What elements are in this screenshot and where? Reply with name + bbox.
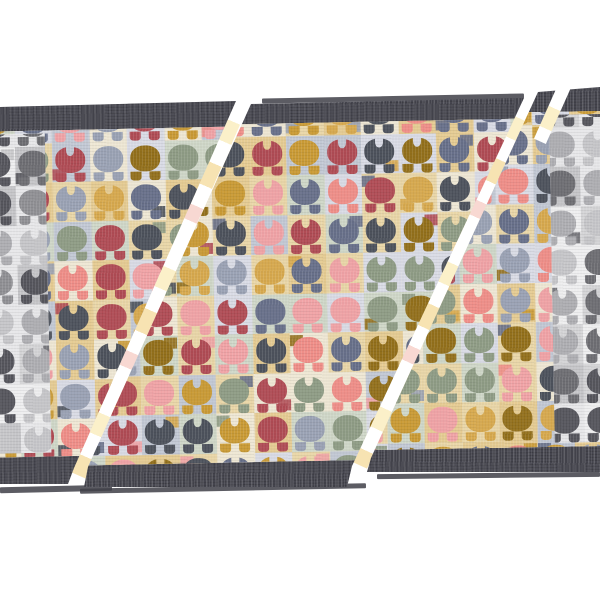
- pattern-cell: [582, 324, 600, 364]
- pattern-blob: [549, 210, 576, 237]
- pattern-foot: [387, 361, 398, 370]
- pattern-blob: [215, 180, 246, 207]
- pattern-cell: [0, 423, 21, 454]
- pattern-cell: [19, 343, 52, 383]
- pattern-blob: [0, 348, 15, 375]
- pattern-foot: [401, 124, 412, 133]
- mat-border-bottom: [358, 446, 600, 486]
- pattern-cell: [579, 126, 600, 166]
- pattern-foot: [112, 171, 123, 180]
- pattern-foot: [150, 210, 161, 219]
- pattern-foot: [74, 172, 85, 181]
- pattern-blob: [549, 289, 577, 316]
- pattern-foot: [314, 442, 325, 451]
- gray-colorway-strip: [549, 114, 600, 443]
- pattern-foot: [567, 354, 578, 363]
- pattern-cell: [461, 362, 499, 402]
- pattern-cell: [177, 295, 215, 335]
- pattern-blob: [403, 216, 434, 243]
- pattern-foot: [540, 431, 551, 440]
- pattern-notch: [376, 214, 384, 226]
- pattern-cell: [90, 181, 128, 221]
- pattern-cell: [288, 254, 326, 294]
- pattern-blob: [332, 415, 363, 442]
- pattern-cell: [424, 402, 462, 442]
- pattern-foot: [308, 165, 319, 174]
- pattern-foot: [238, 404, 249, 413]
- pattern-foot: [164, 445, 175, 454]
- pattern-blob: [22, 387, 51, 414]
- pattern-notch: [263, 177, 271, 189]
- pattern-notch: [414, 213, 422, 225]
- pattern-notch: [179, 181, 187, 193]
- pattern-blob: [502, 405, 532, 432]
- pattern-foot: [97, 369, 108, 378]
- pattern-blob: [402, 176, 433, 203]
- pattern-blob: [254, 258, 285, 285]
- pattern-blob: [255, 337, 286, 364]
- pattern-cell: [212, 216, 250, 256]
- pattern-foot: [565, 196, 576, 205]
- pattern-notch: [30, 226, 38, 238]
- pattern-blob: [253, 219, 284, 246]
- pattern-foot: [402, 163, 413, 172]
- pattern-foot: [499, 195, 510, 204]
- pattern-cell: [127, 141, 165, 181]
- pattern-blob: [56, 186, 87, 213]
- pattern-notch: [31, 266, 39, 278]
- pattern-cell: [252, 333, 290, 373]
- pattern-cell: [0, 134, 14, 148]
- pattern-blob: [365, 177, 396, 204]
- pattern-foot: [310, 244, 321, 253]
- pattern-cell: [19, 383, 51, 423]
- pattern-cell: [176, 256, 214, 296]
- pattern-foot: [77, 291, 88, 300]
- pattern-foot: [254, 285, 265, 294]
- pattern-blob: [294, 376, 325, 403]
- pattern-foot: [387, 322, 398, 331]
- pattern-blob: [366, 217, 397, 244]
- pattern-foot: [168, 170, 179, 179]
- pattern-foot: [465, 432, 476, 441]
- pattern-notch: [437, 364, 445, 376]
- pattern-cell: [363, 252, 401, 292]
- pattern-foot: [21, 295, 32, 304]
- pattern-blob: [584, 249, 600, 276]
- pattern-blob: [130, 145, 161, 172]
- pattern-cell: [105, 455, 143, 466]
- pattern-blob: [0, 427, 16, 454]
- pattern-foot: [520, 313, 531, 322]
- pattern-blob: [18, 189, 49, 216]
- mat-border-top: [0, 86, 246, 131]
- pattern-cell: [286, 135, 324, 175]
- pattern-foot: [271, 166, 282, 175]
- pattern-notch: [510, 205, 518, 217]
- pattern-cell: [398, 133, 436, 173]
- pattern-foot: [205, 130, 216, 139]
- pattern-blob: [292, 297, 323, 324]
- pattern-notch: [450, 133, 458, 145]
- pattern-notch: [230, 414, 238, 426]
- pattern-foot: [5, 414, 16, 423]
- pattern-foot: [130, 132, 141, 141]
- pattern-foot: [19, 216, 30, 225]
- pattern-foot: [167, 131, 178, 140]
- pattern-cell: [578, 114, 600, 127]
- pattern-cell: [360, 118, 398, 134]
- pattern-foot: [127, 445, 138, 454]
- pattern-cell: [254, 412, 292, 452]
- pattern-foot: [481, 274, 492, 283]
- pattern-foot: [187, 170, 198, 179]
- pattern-cell: [365, 331, 403, 371]
- pattern-foot: [445, 314, 456, 323]
- pattern-foot: [79, 370, 90, 379]
- pattern-notch: [68, 262, 76, 274]
- pattern-cell: [20, 422, 51, 453]
- pattern-foot: [568, 394, 579, 403]
- pattern-blob: [57, 265, 88, 292]
- pattern-foot: [0, 216, 11, 225]
- pattern-cell: [580, 205, 600, 245]
- pattern-foot: [289, 166, 300, 175]
- pattern-cell: [549, 285, 582, 325]
- pattern-cell: [583, 363, 600, 403]
- pattern-cell: [328, 371, 366, 411]
- pattern-cell: [498, 362, 536, 402]
- pattern-cell: [287, 175, 325, 215]
- pattern-foot: [215, 207, 226, 216]
- pattern-cell: [140, 336, 178, 376]
- pattern-foot: [583, 196, 594, 205]
- pattern-cell: [549, 324, 583, 364]
- pattern-notch: [262, 137, 270, 149]
- pattern-cell: [290, 333, 328, 373]
- pattern-blob: [107, 419, 138, 446]
- pattern-foot: [3, 335, 14, 344]
- pattern-cell: [56, 340, 94, 380]
- pattern-blob: [22, 347, 52, 374]
- pattern-foot: [367, 283, 378, 292]
- pattern-foot: [368, 362, 379, 371]
- pattern-notch: [379, 332, 387, 344]
- pattern-blob: [463, 287, 493, 314]
- pattern-foot: [332, 402, 343, 411]
- pattern-foot: [239, 443, 250, 452]
- pattern-notch: [451, 173, 459, 185]
- pattern-foot: [313, 402, 324, 411]
- pattern-notch: [192, 376, 200, 388]
- pattern-notch: [107, 340, 115, 352]
- pattern-notch: [193, 415, 201, 427]
- pattern-foot: [404, 282, 415, 291]
- pattern-foot: [440, 202, 451, 211]
- pattern-blob: [328, 217, 359, 244]
- pattern-foot: [220, 443, 231, 452]
- pattern-foot: [235, 246, 246, 255]
- pattern-foot: [584, 275, 595, 284]
- pattern-foot: [198, 246, 209, 255]
- pattern-foot: [441, 242, 452, 251]
- pattern-blob: [294, 416, 325, 443]
- pattern-foot: [23, 413, 34, 422]
- pattern-cell: [253, 373, 291, 413]
- pattern-blob: [587, 407, 600, 434]
- pattern-cell: [498, 322, 536, 362]
- pattern-blob: [0, 230, 12, 257]
- pattern-cell: [291, 412, 329, 452]
- pattern-foot: [351, 401, 362, 410]
- pattern-foot: [405, 321, 416, 330]
- pattern-cell: [248, 136, 286, 176]
- pattern-blob: [60, 383, 91, 410]
- pattern-foot: [365, 204, 376, 213]
- pattern-notch: [264, 216, 272, 228]
- pattern-foot: [96, 330, 107, 339]
- pattern-foot: [114, 250, 125, 259]
- pattern-blob: [144, 379, 175, 406]
- pattern-foot: [331, 362, 342, 371]
- pattern-foot: [501, 313, 512, 322]
- pattern-cell: [128, 180, 166, 220]
- pattern-notch: [104, 182, 112, 194]
- pattern-foot: [549, 157, 556, 166]
- pattern-foot: [4, 374, 15, 383]
- pattern-foot: [273, 245, 284, 254]
- pattern-foot: [257, 403, 268, 412]
- pattern-foot: [59, 331, 70, 340]
- pattern-foot: [95, 290, 106, 299]
- pattern-notch: [155, 416, 163, 428]
- pattern-blob: [464, 366, 494, 393]
- pattern-foot: [251, 127, 262, 136]
- pattern-foot: [163, 405, 174, 414]
- pattern-foot: [217, 286, 228, 295]
- pattern-cell: [16, 225, 51, 265]
- pattern-notch: [337, 136, 345, 148]
- pattern-foot: [421, 163, 432, 172]
- pattern-blob: [0, 309, 14, 336]
- pattern-notch: [341, 333, 349, 345]
- pattern-foot: [312, 363, 323, 372]
- pattern-foot: [518, 194, 529, 203]
- pattern-notch: [510, 244, 518, 256]
- pattern-foot: [219, 404, 230, 413]
- pattern-blob: [257, 416, 288, 443]
- pattern-cell: [0, 384, 20, 424]
- pattern-foot: [162, 366, 173, 375]
- pattern-cell: [497, 283, 535, 323]
- pattern-foot: [383, 164, 394, 173]
- pattern-foot: [293, 363, 304, 372]
- pattern-cell: [55, 300, 93, 340]
- pattern-cell: [496, 243, 534, 283]
- pattern-cell: [323, 134, 361, 174]
- pattern-blob: [331, 375, 362, 402]
- pattern-notch: [227, 256, 235, 268]
- pattern-blob: [501, 326, 531, 353]
- pattern-cell: [126, 126, 164, 141]
- pattern-foot: [21, 334, 32, 343]
- pattern-cell: [423, 363, 461, 403]
- pattern-notch: [511, 284, 519, 296]
- pattern-foot: [463, 314, 474, 323]
- pattern-foot: [56, 212, 67, 221]
- pattern-cell: [0, 226, 17, 266]
- pattern-cell: [289, 293, 327, 333]
- pattern-foot: [290, 205, 301, 214]
- pattern-notch: [474, 324, 482, 336]
- pattern-foot: [390, 433, 401, 442]
- pattern-foot: [549, 197, 557, 206]
- pattern-blob: [293, 337, 324, 364]
- pattern-foot: [234, 206, 245, 215]
- pattern-blob: [143, 340, 174, 367]
- pattern-foot: [348, 243, 359, 252]
- pattern-foot: [272, 205, 283, 214]
- pattern-cell: [52, 142, 90, 182]
- pattern-foot: [218, 365, 229, 374]
- pattern-blob: [586, 367, 600, 394]
- pattern-foot: [582, 157, 593, 166]
- pattern-foot: [55, 173, 66, 182]
- pattern-cell: [0, 186, 16, 226]
- pattern-cell: [364, 292, 402, 332]
- pattern-notch: [375, 135, 383, 147]
- pattern-cell: [141, 375, 179, 415]
- pattern-foot: [169, 210, 180, 219]
- pattern-foot: [539, 391, 550, 400]
- pattern-foot: [78, 330, 89, 339]
- pattern-cell: [362, 173, 400, 213]
- pattern-foot: [273, 284, 284, 293]
- pattern-blob: [256, 377, 287, 404]
- pattern-foot: [332, 441, 343, 450]
- pattern-notch: [513, 402, 521, 414]
- pattern-foot: [216, 246, 227, 255]
- pattern-foot: [566, 275, 577, 284]
- pattern-foot: [131, 210, 142, 219]
- pattern-blob: [465, 406, 495, 433]
- pattern-foot: [42, 413, 51, 422]
- pattern-blob: [326, 138, 357, 165]
- pattern-foot: [349, 322, 360, 331]
- pattern-cell: [584, 403, 600, 443]
- pattern-cell: [141, 415, 179, 455]
- pattern-foot: [502, 392, 513, 401]
- pattern-blob: [180, 299, 211, 326]
- pattern-blob: [502, 366, 532, 393]
- pattern-notch: [191, 336, 199, 348]
- pattern-cell: [400, 212, 438, 252]
- pattern-foot: [201, 404, 212, 413]
- pattern-cell: [496, 204, 534, 244]
- pattern-notch: [593, 127, 600, 139]
- pattern-blob: [18, 150, 49, 177]
- pattern-foot: [181, 365, 192, 374]
- pattern-foot: [565, 236, 576, 245]
- pattern-foot: [182, 405, 193, 414]
- pattern-foot: [423, 242, 434, 251]
- pattern-blob: [583, 209, 600, 236]
- pattern-foot: [60, 370, 71, 379]
- pattern-foot: [345, 125, 356, 134]
- pattern-cell: [0, 344, 19, 384]
- pattern-foot: [582, 117, 593, 126]
- pattern-cell: [436, 132, 474, 172]
- pattern-cell: [399, 172, 437, 212]
- pattern-foot: [293, 324, 304, 333]
- pattern-foot: [522, 431, 533, 440]
- pattern-notch: [32, 305, 40, 317]
- pattern-blob: [289, 139, 320, 166]
- pattern-notch: [415, 253, 423, 265]
- pattern-foot: [404, 242, 415, 251]
- pattern-foot: [536, 194, 547, 203]
- pattern-blob: [366, 256, 397, 283]
- pattern-foot: [291, 245, 302, 254]
- pattern-cell: [549, 206, 581, 246]
- pattern-cell: [329, 411, 367, 451]
- pattern-foot: [464, 393, 475, 402]
- pattern-cell: [54, 221, 92, 261]
- pattern-foot: [364, 164, 375, 173]
- pattern-foot: [57, 252, 68, 261]
- pattern-foot: [237, 364, 248, 373]
- pattern-foot: [563, 117, 574, 126]
- pattern-blob: [549, 131, 575, 158]
- pattern-foot: [423, 281, 434, 290]
- pattern-blob: [330, 296, 361, 323]
- pattern-foot: [476, 122, 487, 131]
- pattern-foot: [20, 255, 31, 264]
- pattern-blob: [95, 264, 126, 291]
- pattern-blob: [19, 229, 50, 256]
- pattern-foot: [501, 353, 512, 362]
- pattern-notch: [474, 285, 482, 297]
- pattern-foot: [58, 291, 69, 300]
- pattern-cell: [327, 332, 365, 372]
- pattern-foot: [276, 403, 287, 412]
- pattern-cell: [53, 182, 91, 222]
- pattern-foot: [464, 353, 475, 362]
- pattern-cell: [462, 402, 500, 442]
- pattern-foot: [236, 285, 247, 294]
- pattern-foot: [564, 157, 575, 166]
- pattern-cell: [89, 126, 127, 142]
- pattern-cell: [581, 245, 600, 285]
- pattern-foot: [445, 353, 456, 362]
- pattern-foot: [108, 446, 119, 455]
- pattern-blob: [21, 308, 52, 335]
- pattern-foot: [18, 176, 29, 185]
- pattern-foot: [289, 126, 300, 135]
- pattern-blob: [59, 344, 90, 371]
- pattern-foot: [277, 442, 288, 451]
- pattern-notch: [487, 133, 495, 145]
- pattern-cell: [104, 415, 142, 455]
- pattern-cell: [163, 126, 201, 140]
- pattern-foot: [330, 323, 341, 332]
- pattern-foot: [79, 409, 90, 418]
- pattern-cell: [499, 401, 537, 441]
- pattern-blob: [252, 179, 283, 206]
- pattern-cell: [0, 265, 18, 305]
- pattern-foot: [76, 251, 87, 260]
- pattern-cell: [549, 364, 584, 404]
